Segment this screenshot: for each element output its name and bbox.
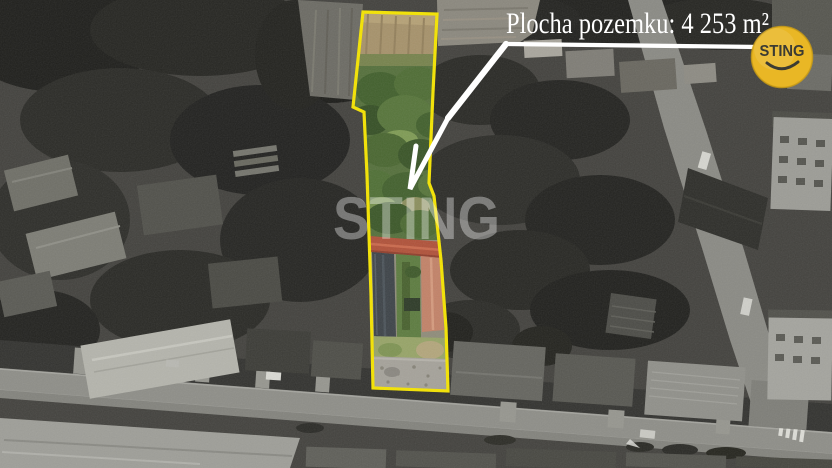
logo-brand-text: STING: [760, 43, 805, 60]
callout-underline: [506, 44, 760, 47]
callout-label: Plocha pozemku: 4 253 m²: [506, 7, 769, 40]
listing-aerial-image: STING Plocha pozemku: 4 253 m² STING: [0, 0, 832, 468]
watermark: STING: [333, 185, 500, 252]
sting-logo: STING: [752, 27, 813, 88]
